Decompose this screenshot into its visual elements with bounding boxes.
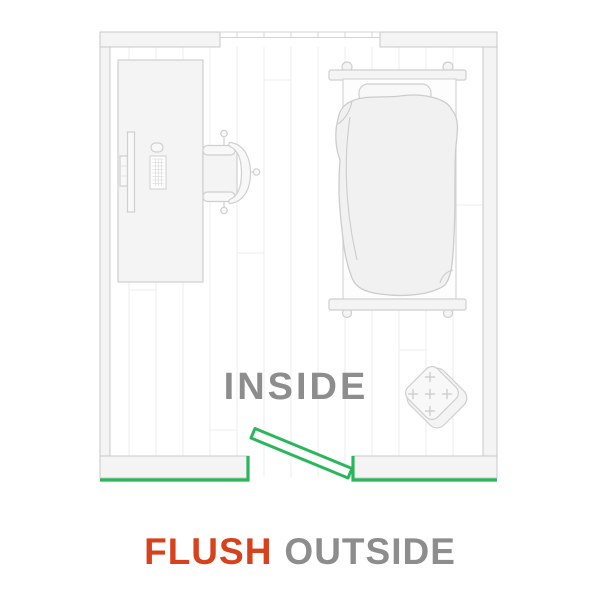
caption-outside: OUTSIDE [284, 531, 455, 572]
floorplan-illustration: INSIDE FLUSHOUTSIDE [0, 0, 600, 600]
footboard [329, 299, 466, 310]
caption-flush: FLUSH [144, 531, 272, 572]
door-leaf [251, 429, 352, 479]
office-chair [203, 130, 260, 213]
chair-seat [203, 150, 237, 197]
bottom-wall-right [352, 456, 497, 478]
duvet [336, 95, 458, 295]
desk [118, 60, 203, 282]
ottoman [402, 363, 471, 432]
keyboard [150, 156, 166, 189]
bed [329, 62, 466, 318]
mouse [151, 143, 163, 152]
right-wall [483, 32, 497, 457]
inside-label: INSIDE [224, 366, 369, 409]
caption: FLUSHOUTSIDE [144, 531, 456, 573]
bottom-wall-left [100, 456, 249, 478]
top-wall-left [100, 32, 220, 47]
left-wall [100, 32, 110, 457]
caster-wheel [253, 169, 259, 175]
floorplan-canvas [0, 0, 600, 600]
caster-wheel [221, 207, 227, 213]
top-wall-right [380, 32, 497, 47]
window [220, 32, 380, 38]
caster-wheel [221, 130, 227, 136]
